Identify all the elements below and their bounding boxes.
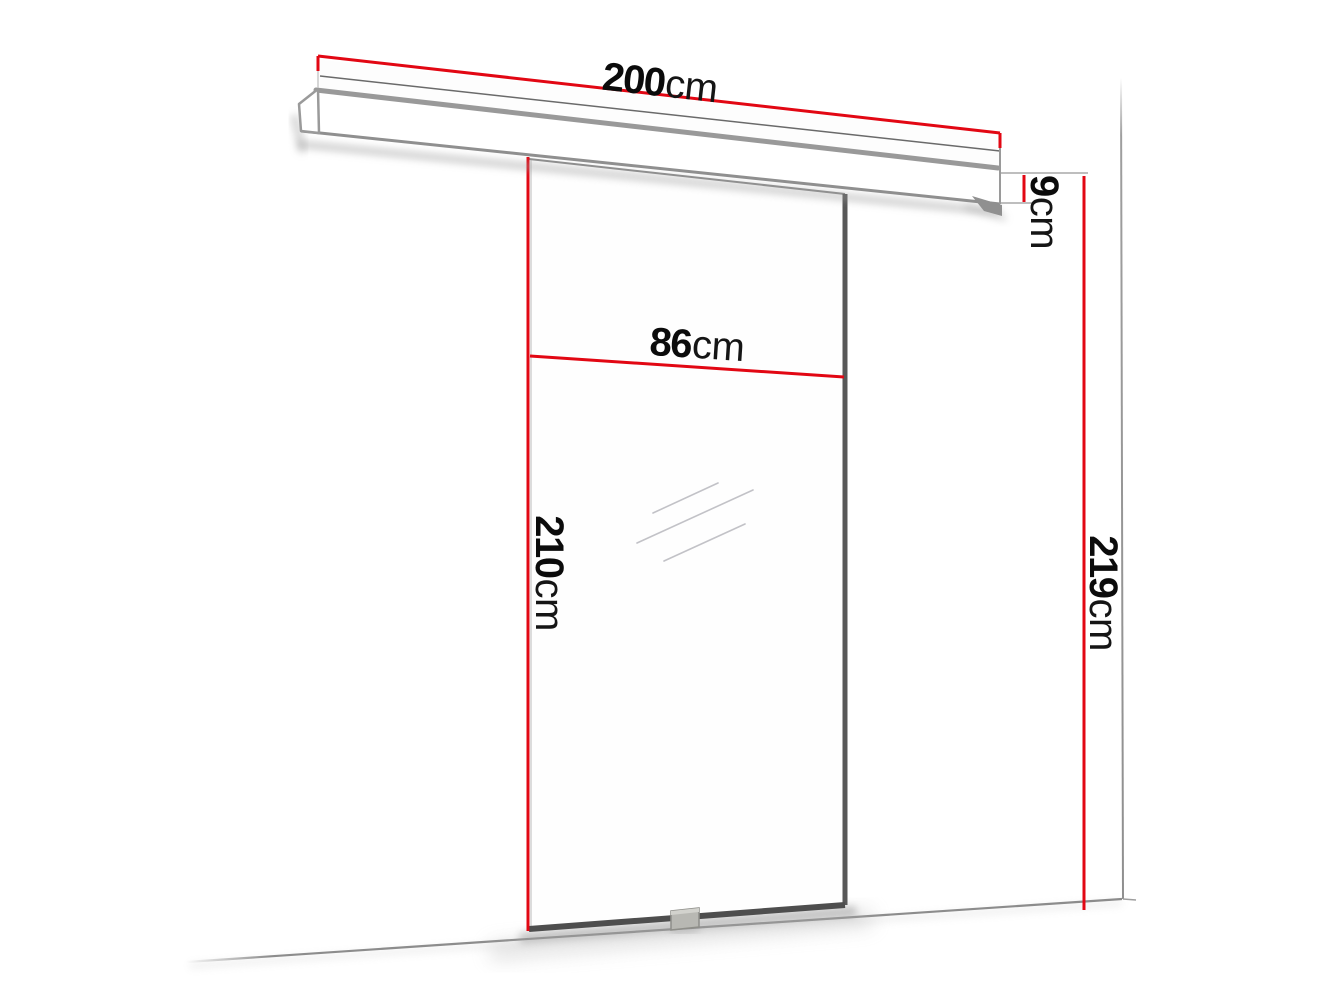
track-left-end-cap [299,89,319,133]
diagram-stage: 200cm 86cm 210cm 9cm 219cm [0,0,1322,992]
door-panel [529,159,845,929]
wall-corner-line [1121,78,1123,899]
floor-line-right-segment [1123,899,1136,900]
sliding-door-diagram-canvas [0,0,1322,992]
